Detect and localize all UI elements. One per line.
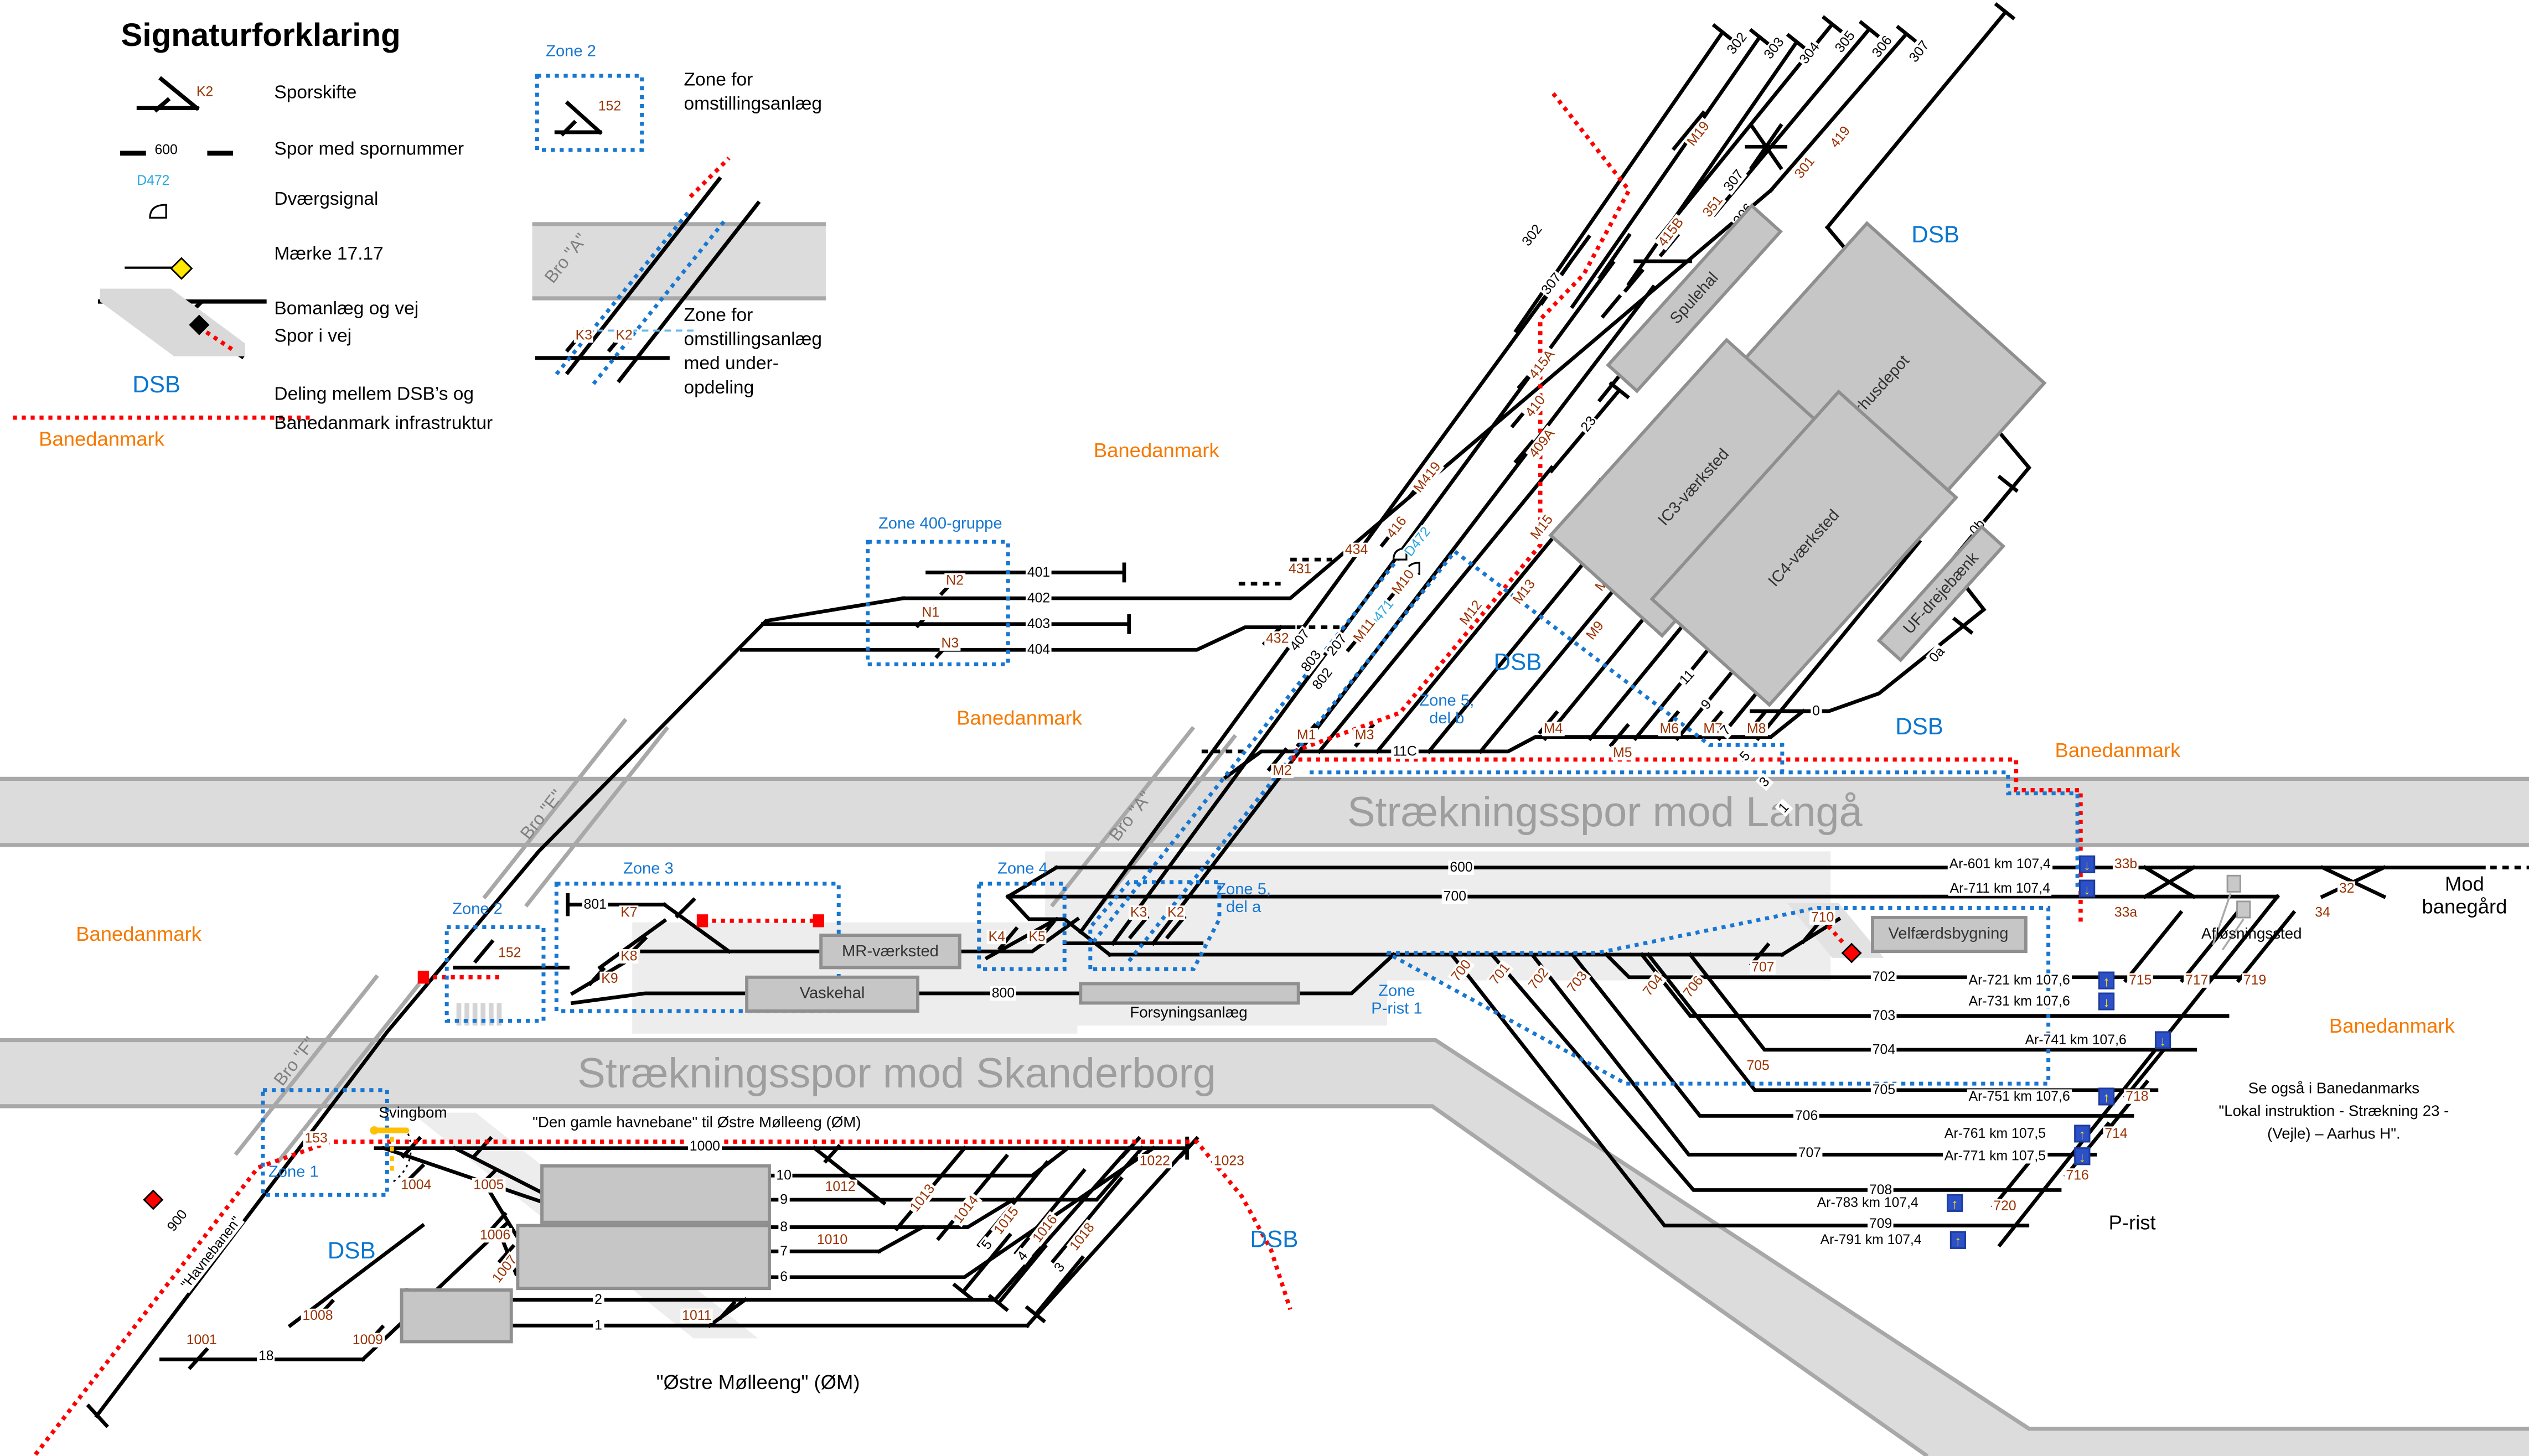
track-label: 1000 xyxy=(688,1139,722,1154)
switch-label: K4 xyxy=(987,930,1007,944)
switch-label: 1001 xyxy=(185,1333,219,1347)
track-label: 4 xyxy=(1013,1247,1032,1265)
region-label-dsb: DSB xyxy=(1494,652,1542,676)
legend-item-label: Mærke 17.17 xyxy=(274,245,383,265)
switch-label: 1005 xyxy=(472,1178,505,1193)
track-label: 706 xyxy=(1793,1108,1819,1123)
legend-item-label: Banedanmark infrastruktur xyxy=(274,414,493,434)
track-label: 600 xyxy=(153,143,179,157)
km-marker-up-icon: ↑ xyxy=(2098,972,2114,989)
legend-caption: Zone for xyxy=(684,307,753,326)
km-marker-up-icon: ↑ xyxy=(1947,1194,1963,1212)
track-label: 307 xyxy=(1538,269,1565,298)
legend-item-label: Deling mellem DSB’s og xyxy=(274,385,474,405)
switch-label: 714 xyxy=(2103,1126,2129,1141)
switch-label: K2 xyxy=(195,85,215,99)
zone-label: Zone 2 xyxy=(452,903,503,920)
legend-item-label: Spor med spornummer xyxy=(274,140,464,159)
legend-item-label: Spor i vej xyxy=(274,327,351,346)
building xyxy=(540,1163,770,1223)
label-layer: Signaturforklaring Strækningsspor mod La… xyxy=(0,0,2529,1456)
track-label: 307 xyxy=(1906,37,1933,66)
switch-label: M419 xyxy=(1410,458,1445,496)
switch-label: 719 xyxy=(2242,973,2268,988)
switch-label: 706 xyxy=(1680,972,1708,1002)
switch-label: 32 xyxy=(2337,882,2356,896)
bridge-label: Bro "F" xyxy=(272,1035,322,1090)
track-label: "Havnebanen" xyxy=(178,1213,245,1293)
switch-label: N1 xyxy=(920,605,942,620)
region-label-banedanmark: Banedanmark xyxy=(956,708,1082,729)
track-label: 707 xyxy=(1797,1146,1823,1160)
switch-label: 1013 xyxy=(907,1180,939,1216)
switch-label: 704 xyxy=(1640,971,1667,1000)
track-label: 9 xyxy=(1698,696,1715,713)
km-marker-down-icon: ↓ xyxy=(2079,856,2095,873)
switch-label: N3 xyxy=(940,636,961,651)
km-marker-down-icon: ↓ xyxy=(2074,1147,2090,1165)
switch-label: 409A xyxy=(1525,425,1559,462)
note-label: (Vejle) – Aarhus H". xyxy=(2267,1127,2401,1143)
km-marker-down-icon: ↓ xyxy=(2079,880,2095,898)
track-label: 800 xyxy=(990,986,1016,1001)
legend-caption: Zone for xyxy=(684,71,753,90)
switch-label: 702 xyxy=(1525,964,1553,993)
track-label: 700 xyxy=(1442,889,1468,904)
switch-label: 419 xyxy=(1827,122,1854,152)
switch-label: K7 xyxy=(619,905,639,920)
track-label: 3 xyxy=(1051,1259,1069,1276)
zone-label: Zone 3 xyxy=(623,862,674,879)
dwarf-signal-label: D472 xyxy=(137,173,169,188)
switch-label: 1004 xyxy=(399,1178,433,1193)
legend-item-label: Sporskifte xyxy=(274,84,356,103)
switch-label: M8 xyxy=(1745,722,1767,736)
zone-label: Zone 4 xyxy=(997,862,1048,879)
switch-label: 1012 xyxy=(824,1180,857,1194)
building xyxy=(1078,982,1299,1005)
track-label: 304 xyxy=(1796,39,1824,68)
switch-label: 1016 xyxy=(1029,1211,1061,1246)
legend-caption: omstillingsanlæg xyxy=(684,330,822,350)
bridge-label: Bro "E" xyxy=(519,788,568,844)
track-label: 600 xyxy=(1448,861,1474,875)
km-marker-down-icon: ↓ xyxy=(2098,993,2114,1011)
switch-label: 1022 xyxy=(1138,1154,1172,1168)
legend-caption: opdeling xyxy=(684,379,754,398)
zone-label: Zone 5, del b xyxy=(1419,694,1474,728)
building-vaskehal: Vaskehal xyxy=(745,975,919,1012)
switch-label: 301 xyxy=(1791,153,1819,182)
km-post-label: Ar-791 km 107,4 xyxy=(1819,1233,1923,1247)
switch-label: 416 xyxy=(1383,512,1411,542)
track-label: 403 xyxy=(1026,617,1052,631)
switch-label: 415A xyxy=(1525,346,1559,382)
switch-label: 718 xyxy=(2124,1089,2150,1103)
track-label: 207 xyxy=(1323,630,1351,660)
track-label: 303 xyxy=(1761,34,1788,63)
switch-label: 1008 xyxy=(301,1309,335,1323)
switch-label: M5 xyxy=(1611,746,1633,760)
switch-label: 434 xyxy=(1343,543,1369,557)
switch-label: 34 xyxy=(2313,905,2331,920)
track-diagram: Signaturforklaring Strækningsspor mod La… xyxy=(0,0,2529,1456)
switch-label: 152 xyxy=(597,99,623,113)
km-post-label: Ar-751 km 107,6 xyxy=(1967,1089,2072,1103)
track-label: 402 xyxy=(1026,591,1052,605)
switch-label: K8 xyxy=(619,949,639,963)
switch-label: K3 xyxy=(1129,905,1149,920)
track-label: 705 xyxy=(1871,1083,1897,1097)
caption-label: Mod xyxy=(2445,875,2484,896)
switch-label: K2 xyxy=(614,328,634,343)
legend-title: Signaturforklaring xyxy=(121,20,401,54)
switch-label: M2 xyxy=(1271,764,1293,778)
switch-label: M13 xyxy=(1509,576,1539,608)
legend-item-label: Bomanlæg og vej xyxy=(274,300,418,319)
dwarf-signal-label: D472 xyxy=(1402,525,1434,559)
region-label-banedanmark: Banedanmark xyxy=(2329,1017,2455,1038)
switch-label: K5 xyxy=(1027,930,1047,944)
note-label: "Den gamle havnebane" til Østre Mølleeng… xyxy=(532,1116,861,1132)
switch-label: 33b xyxy=(2113,857,2139,872)
switch-label: 720 xyxy=(1992,1199,2018,1214)
building xyxy=(400,1288,513,1343)
region-label-banedanmark: Banedanmark xyxy=(76,925,201,946)
switch-label: 705 xyxy=(1745,1059,1771,1073)
region-label-dsb: DSB xyxy=(1895,717,1943,741)
switch-label: N2 xyxy=(944,573,965,588)
track-label: 900 xyxy=(164,1206,192,1235)
switch-label: K3 xyxy=(574,328,594,343)
building-caption: Forsyningsanlæg xyxy=(1130,1006,1247,1022)
track-label: 11C xyxy=(1391,744,1418,759)
switch-label: M4 xyxy=(1542,722,1564,736)
track-label: 801 xyxy=(582,898,608,912)
note-label: Svingbom xyxy=(379,1106,447,1122)
switch-label: 33a xyxy=(2113,905,2139,920)
switch-label: 1011 xyxy=(680,1309,713,1323)
track-label: 305 xyxy=(1832,27,1859,56)
km-post-label: Ar-741 km 107,6 xyxy=(2024,1033,2128,1047)
switch-label: M10 xyxy=(1388,566,1418,599)
switch-label: 710 xyxy=(1809,910,1835,925)
switch-label: M3 xyxy=(1353,728,1375,743)
switch-label: 716 xyxy=(2065,1168,2091,1183)
switch-label: M9 xyxy=(1582,617,1607,644)
switch-label: 703 xyxy=(1564,967,1591,997)
bridge-label: Bro "A" xyxy=(1108,789,1157,846)
km-post-label: Ar-761 km 107,5 xyxy=(1943,1126,2047,1141)
legend-item-label: Dværgsignal xyxy=(274,190,378,210)
bridge-label: Bro "A" xyxy=(543,231,593,288)
track-label: 302 xyxy=(1724,29,1751,58)
zone-label: Zone P-rist 1 xyxy=(1371,985,1422,1018)
switch-label: 715 xyxy=(2127,973,2153,988)
km-marker-up-icon: ↑ xyxy=(2098,1087,2114,1105)
band-label-skanderborg: Strækningsspor mod Skanderborg xyxy=(577,1052,1216,1096)
switch-label: 1006 xyxy=(478,1228,512,1242)
switch-label: M1 xyxy=(1295,728,1317,743)
track-label: 703 xyxy=(1871,1009,1897,1023)
switch-label: M19 xyxy=(1683,118,1713,151)
zone-label: Zone 5, del a xyxy=(1216,883,1271,916)
switch-label: 410 xyxy=(1522,392,1549,421)
region-label-dsb: DSB xyxy=(328,1241,376,1265)
track-label: 9 xyxy=(778,1193,789,1207)
km-post-label: Ar-771 km 107,5 xyxy=(1943,1149,2047,1163)
switch-label: 1015 xyxy=(990,1203,1022,1239)
track-label: 23 xyxy=(1578,412,1600,436)
km-marker-up-icon: ↑ xyxy=(2074,1125,2090,1142)
zone-label: Zone 400-gruppe xyxy=(878,517,1002,535)
legend-caption: omstillingsanlæg xyxy=(684,95,822,115)
region-label-dsb: DSB xyxy=(1911,225,1959,249)
region-label-dsb: DSB xyxy=(132,375,180,399)
switch-label: 153 xyxy=(303,1131,329,1146)
switch-label: 707 xyxy=(1750,960,1776,975)
km-marker-down-icon: ↓ xyxy=(2155,1031,2171,1049)
track-label: 302 xyxy=(1518,221,1546,250)
km-post-label: Ar-721 km 107,6 xyxy=(1967,973,2072,988)
switch-label: K9 xyxy=(599,972,619,986)
track-label: 2 xyxy=(593,1293,604,1307)
track-label: 307 xyxy=(1720,166,1748,195)
km-marker-up-icon: ↑ xyxy=(1950,1231,1966,1249)
track-label: 5 xyxy=(1736,748,1754,765)
switch-label: 1018 xyxy=(1066,1219,1098,1255)
caption-label: P-rist xyxy=(2109,1214,2156,1235)
switch-label: 1010 xyxy=(815,1233,849,1247)
switch-label: K2 xyxy=(1166,905,1186,920)
track-label: 5 xyxy=(978,1236,996,1253)
switch-label: 1023 xyxy=(1212,1154,1246,1168)
track-label: 7 xyxy=(1717,722,1735,739)
track-label: 306 xyxy=(1869,32,1896,61)
building xyxy=(516,1223,770,1289)
switch-label: 152 xyxy=(497,946,523,960)
legend-caption: med under- xyxy=(684,355,778,374)
track-label: 10 xyxy=(774,1168,793,1183)
zone-label: Zone 2 xyxy=(546,45,596,62)
caption-label: "Østre Mølleeng" (ØM) xyxy=(656,1373,860,1394)
switch-label: 701 xyxy=(1486,959,1514,988)
track-label: 709 xyxy=(1868,1217,1894,1231)
track-label: 6 xyxy=(778,1270,789,1284)
track-label: 404 xyxy=(1026,642,1052,657)
track-label: 702 xyxy=(1871,970,1897,985)
track-label: 1 xyxy=(593,1318,604,1333)
switch-label: 717 xyxy=(2184,973,2210,988)
switch-label: M12 xyxy=(1456,597,1486,629)
track-label: 18 xyxy=(257,1349,275,1364)
building-mr-v-rksted: MR-værksted xyxy=(819,934,961,969)
track-label: 8 xyxy=(778,1220,789,1234)
switch-label: 1014 xyxy=(950,1191,982,1227)
track-label: 0 xyxy=(1811,704,1822,718)
km-post-label: Ar-711 km 107,4 xyxy=(1948,882,2052,896)
track-label: 7 xyxy=(778,1244,789,1258)
track-label: 704 xyxy=(1871,1043,1897,1057)
km-post-label: Ar-731 km 107,6 xyxy=(1967,994,2072,1009)
track-label: 0a xyxy=(1926,643,1949,666)
note-label: Afløsningssted xyxy=(2201,928,2302,944)
region-label-banedanmark: Banedanmark xyxy=(39,429,164,450)
zone-label: Zone 1 xyxy=(268,1165,319,1183)
region-label-dsb: DSB xyxy=(1250,1230,1299,1254)
km-post-label: Ar-601 km 107,4 xyxy=(1948,857,2052,872)
caption-label: banegård xyxy=(2422,897,2507,918)
track-label: 401 xyxy=(1026,565,1052,579)
switch-label: 700 xyxy=(1447,956,1475,986)
switch-label: M6 xyxy=(1658,722,1680,736)
track-label: 11 xyxy=(1676,666,1698,688)
region-label-banedanmark: Banedanmark xyxy=(2055,741,2181,762)
km-post-label: Ar-783 km 107,4 xyxy=(1816,1196,1920,1210)
switch-label: 415B xyxy=(1654,214,1688,251)
note-label: Se også i Banedanmarks xyxy=(2248,1082,2419,1098)
region-label-banedanmark: Banedanmark xyxy=(1094,441,1219,462)
switch-label: 431 xyxy=(1287,562,1313,577)
building-velf-rdsbygning: Velfærdsbygning xyxy=(1870,915,2027,952)
note-label: "Lokal instruktion - Strækning 23 - xyxy=(2218,1105,2449,1121)
switch-label: 1009 xyxy=(351,1333,385,1347)
switch-label: 351 xyxy=(1699,191,1727,221)
